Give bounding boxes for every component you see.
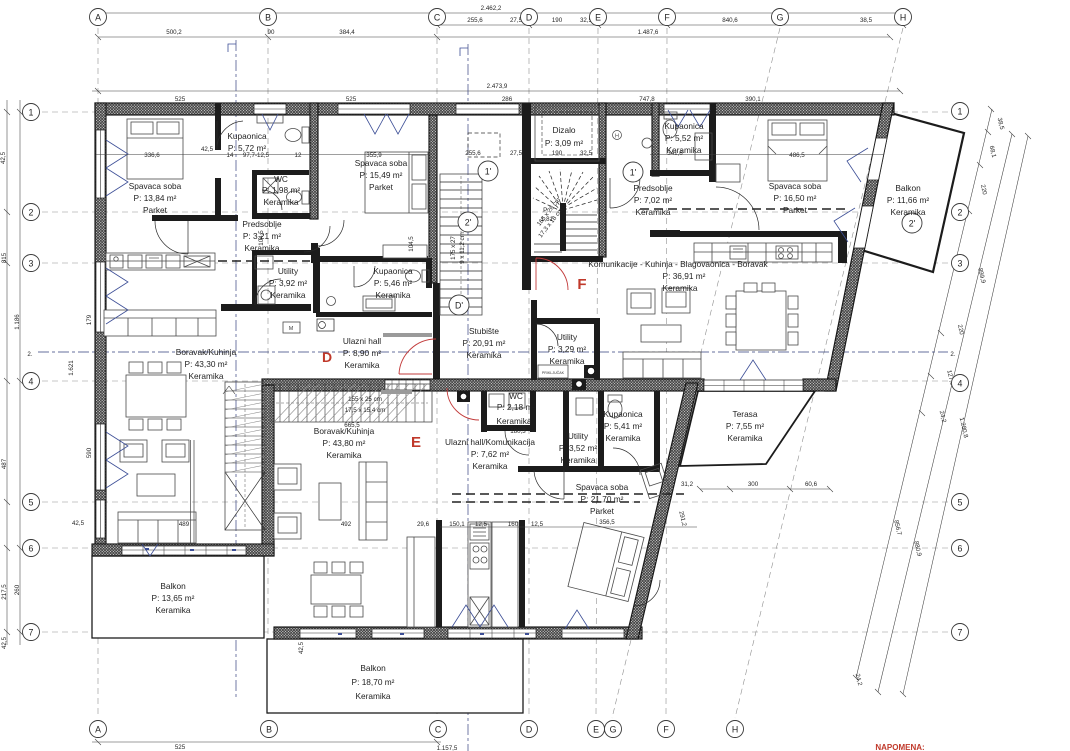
svg-text:3: 3 xyxy=(29,259,34,269)
svg-text:1': 1' xyxy=(485,167,492,177)
svg-text:104,5: 104,5 xyxy=(408,236,415,252)
svg-text:27,5: 27,5 xyxy=(510,150,523,157)
svg-text:Keramika: Keramika xyxy=(635,207,670,217)
svg-text:E: E xyxy=(593,725,599,735)
svg-text:1': 1' xyxy=(630,168,637,178)
svg-text:Parket: Parket xyxy=(590,506,615,516)
svg-text:1: 1 xyxy=(29,108,34,118)
svg-text:P: 2,18 m²: P: 2,18 m² xyxy=(497,402,536,412)
svg-text:H: H xyxy=(732,725,738,735)
svg-text:180,3: 180,3 xyxy=(510,428,526,435)
svg-text:Utility: Utility xyxy=(557,332,578,342)
svg-text:2.: 2. xyxy=(950,351,955,358)
svg-text:Stubište: Stubište xyxy=(469,326,499,336)
svg-text:355,9: 355,9 xyxy=(366,152,382,159)
svg-text:14: 14 xyxy=(227,152,234,159)
svg-text:P: 3,09 m²: P: 3,09 m² xyxy=(545,138,584,148)
svg-text:Komunikacije - Kuhinja - Blago: Komunikacije - Kuhinja - Blagovaonica - … xyxy=(588,259,768,269)
svg-text:P: 20,91 m²: P: 20,91 m² xyxy=(463,338,506,348)
svg-text:840,6: 840,6 xyxy=(722,17,738,24)
svg-text:489: 489 xyxy=(179,521,190,528)
svg-text:2.: 2. xyxy=(27,351,32,358)
svg-text:97,7-12,5: 97,7-12,5 xyxy=(243,152,270,159)
svg-text:Kupaonica: Kupaonica xyxy=(227,131,267,141)
svg-text:390,1: 390,1 xyxy=(745,96,761,103)
svg-text:D: D xyxy=(526,13,532,23)
svg-text:Kupaonica: Kupaonica xyxy=(664,121,704,131)
svg-text:P: 5,41 m²: P: 5,41 m² xyxy=(604,421,643,431)
svg-text:32,5: 32,5 xyxy=(580,150,593,157)
svg-text:255,6: 255,6 xyxy=(467,17,483,24)
svg-text:384,4: 384,4 xyxy=(339,29,355,36)
svg-text:1.487,6: 1.487,6 xyxy=(638,29,659,36)
svg-text:Dizalo: Dizalo xyxy=(552,125,575,135)
svg-text:104,5: 104,5 xyxy=(258,230,265,246)
svg-text:D: D xyxy=(322,349,332,365)
svg-text:Balkon: Balkon xyxy=(360,663,386,673)
svg-text:175 x 27: 175 x 27 xyxy=(450,236,457,260)
svg-text:P: 18,70 m²: P: 18,70 m² xyxy=(352,677,395,687)
svg-text:F: F xyxy=(663,725,669,735)
svg-text:P: 8,90 m²: P: 8,90 m² xyxy=(343,348,382,358)
svg-text:Spavaca soba: Spavaca soba xyxy=(576,482,629,492)
svg-text:2': 2' xyxy=(465,218,472,228)
svg-text:Parket: Parket xyxy=(369,182,394,192)
svg-text:2': 2' xyxy=(909,219,916,229)
svg-text:5: 5 xyxy=(29,498,34,508)
svg-text:Parket: Parket xyxy=(783,205,808,215)
svg-text:Spavaca soba: Spavaca soba xyxy=(129,181,182,191)
svg-text:38,5: 38,5 xyxy=(860,17,873,24)
svg-text:6: 6 xyxy=(29,544,34,554)
svg-text:17,5 x 15,4 cm: 17,5 x 15,4 cm xyxy=(345,407,386,414)
svg-text:P: 7,55 m²: P: 7,55 m² xyxy=(726,421,765,431)
svg-text:2.473,9: 2.473,9 xyxy=(487,83,508,90)
svg-text:42,5: 42,5 xyxy=(0,151,7,164)
svg-text:Predsoblje: Predsoblje xyxy=(633,183,673,193)
svg-text:155 x 25 cm: 155 x 25 cm xyxy=(348,396,382,403)
svg-text:M: M xyxy=(289,326,293,332)
svg-text:P: 11,66 m²: P: 11,66 m² xyxy=(887,195,930,205)
svg-text:C: C xyxy=(434,13,441,23)
svg-text:255,6: 255,6 xyxy=(465,150,481,157)
svg-text:D': D' xyxy=(455,301,463,311)
svg-text:1.157,5: 1.157,5 xyxy=(437,745,458,751)
svg-text:217,5: 217,5 xyxy=(1,584,8,600)
svg-text:P: 5,46 m²: P: 5,46 m² xyxy=(374,278,413,288)
svg-text:31,2: 31,2 xyxy=(681,481,694,488)
svg-text:E: E xyxy=(411,434,421,451)
svg-text:Keramika: Keramika xyxy=(472,461,507,471)
svg-text:P: 43,30 m²: P: 43,30 m² xyxy=(185,359,228,369)
svg-text:341,6: 341,6 xyxy=(667,150,683,157)
svg-text:6: 6 xyxy=(958,544,963,554)
svg-text:Keramika: Keramika xyxy=(326,450,361,460)
svg-text:D: D xyxy=(526,725,532,735)
svg-text:P:: P: xyxy=(543,207,549,214)
svg-text:Keramika: Keramika xyxy=(375,290,410,300)
svg-text:P: 15,49 m²: P: 15,49 m² xyxy=(360,170,403,180)
svg-text:P: 5,52 m²: P: 5,52 m² xyxy=(665,133,704,143)
svg-text:42,5: 42,5 xyxy=(72,520,85,527)
svg-text:WC: WC xyxy=(274,174,288,184)
svg-text:Balkon: Balkon xyxy=(160,581,186,591)
svg-text:Keramika: Keramika xyxy=(549,356,584,366)
svg-text:Ulazni hall/Komunikacija: Ulazni hall/Komunikacija xyxy=(445,437,535,447)
svg-text:Parket: Parket xyxy=(143,205,168,215)
svg-text:A: A xyxy=(95,13,101,23)
svg-text:2.462,2: 2.462,2 xyxy=(481,5,502,12)
svg-text:Keramika: Keramika xyxy=(344,360,379,370)
svg-text:2: 2 xyxy=(958,208,963,218)
svg-text:260: 260 xyxy=(14,584,21,595)
svg-text:12: 12 xyxy=(295,152,302,159)
svg-text:60,6: 60,6 xyxy=(805,481,818,488)
svg-text:Kupaonica: Kupaonica xyxy=(603,409,643,419)
svg-text:Keramika: Keramika xyxy=(270,290,305,300)
svg-text:Keramika: Keramika xyxy=(466,350,501,360)
svg-text:P: 36,91 m²: P: 36,91 m² xyxy=(663,271,706,281)
svg-text:F: F xyxy=(664,13,670,23)
svg-text:7: 7 xyxy=(958,628,963,638)
svg-text:Keramika: Keramika xyxy=(355,691,390,701)
svg-text:P: 3,52 m²: P: 3,52 m² xyxy=(559,443,598,453)
svg-text:Boravak/Kuhinja: Boravak/Kuhinja xyxy=(176,347,237,357)
svg-text:179: 179 xyxy=(86,314,93,325)
svg-text:P: 3,29 m²: P: 3,29 m² xyxy=(548,344,587,354)
svg-text:815: 815 xyxy=(1,252,8,263)
svg-text:29,6: 29,6 xyxy=(417,521,430,528)
svg-text:Utility: Utility xyxy=(278,266,299,276)
svg-text:492: 492 xyxy=(341,521,352,528)
svg-text:P: 43,80 m²: P: 43,80 m² xyxy=(323,438,366,448)
svg-text:486,5: 486,5 xyxy=(789,152,805,159)
svg-text:P: 13,65 m²: P: 13,65 m² xyxy=(152,593,195,603)
svg-text:Terasa: Terasa xyxy=(733,409,758,419)
svg-text:190: 190 xyxy=(552,17,563,24)
svg-text:336,6: 336,6 xyxy=(144,152,160,159)
svg-text:525: 525 xyxy=(175,96,186,103)
svg-text:P: 13,84 m²: P: 13,84 m² xyxy=(134,193,177,203)
svg-text:Balkon: Balkon xyxy=(895,183,921,193)
svg-text:A: A xyxy=(95,725,101,735)
svg-text:9 x 11,2 cm: 9 x 11,2 cm xyxy=(459,232,466,264)
svg-text:G: G xyxy=(610,725,617,735)
svg-text:300: 300 xyxy=(748,481,759,488)
svg-text:P: 3,92 m²: P: 3,92 m² xyxy=(269,278,308,288)
svg-text:PRIKLJUČAK: PRIKLJUČAK xyxy=(542,370,565,375)
svg-text:356,5: 356,5 xyxy=(599,519,615,526)
svg-text:1: 1 xyxy=(958,107,963,117)
svg-text:5: 5 xyxy=(958,498,963,508)
svg-text:B: B xyxy=(266,725,272,735)
svg-text:WC: WC xyxy=(509,391,523,401)
svg-text:P: 7,62 m²: P: 7,62 m² xyxy=(471,449,510,459)
svg-text:525: 525 xyxy=(346,96,357,103)
svg-text:42,5: 42,5 xyxy=(298,641,305,654)
svg-text:4: 4 xyxy=(958,379,963,389)
svg-text:G: G xyxy=(777,13,784,23)
svg-text:Kupaonica: Kupaonica xyxy=(373,266,413,276)
svg-text:Spavaca soba: Spavaca soba xyxy=(769,181,822,191)
svg-text:42,5: 42,5 xyxy=(201,146,214,153)
svg-text:747,8: 747,8 xyxy=(639,96,655,103)
svg-text:3: 3 xyxy=(958,259,963,269)
svg-text:286: 286 xyxy=(502,96,513,103)
svg-text:2: 2 xyxy=(29,208,34,218)
svg-text:1,81: 1,81 xyxy=(541,216,554,223)
svg-text:Utility: Utility xyxy=(568,431,589,441)
svg-text:4: 4 xyxy=(29,377,34,387)
svg-text:Keramika: Keramika xyxy=(605,433,640,443)
svg-text:B: B xyxy=(265,13,271,23)
svg-text:P: 7,02 m²: P: 7,02 m² xyxy=(634,195,673,205)
svg-text:190: 190 xyxy=(552,150,563,157)
svg-text:1.186: 1.186 xyxy=(14,314,21,330)
svg-text:Keramika: Keramika xyxy=(662,283,697,293)
svg-text:NAPOMENA:: NAPOMENA: xyxy=(875,743,924,751)
svg-text:Keramika: Keramika xyxy=(560,455,595,465)
svg-text:Keramika: Keramika xyxy=(188,371,223,381)
svg-text:487: 487 xyxy=(1,458,8,469)
svg-text:1.621: 1.621 xyxy=(68,360,75,376)
svg-text:H: H xyxy=(900,13,906,23)
svg-text:H: H xyxy=(615,134,619,140)
svg-text:Spavaca soba: Spavaca soba xyxy=(355,158,408,168)
svg-text:F: F xyxy=(577,276,586,293)
svg-text:P: 21,70 m²: P: 21,70 m² xyxy=(581,494,624,504)
svg-text:7: 7 xyxy=(29,628,34,638)
svg-text:525: 525 xyxy=(175,744,186,751)
svg-text:500,2: 500,2 xyxy=(166,29,182,36)
svg-text:Keramika: Keramika xyxy=(263,197,298,207)
svg-text:Predsoblje: Predsoblje xyxy=(242,219,282,229)
svg-text:590: 590 xyxy=(86,447,93,458)
svg-text:Keramika: Keramika xyxy=(727,433,762,443)
svg-text:Keramika: Keramika xyxy=(155,605,190,615)
svg-text:Ulazni hall: Ulazni hall xyxy=(343,336,381,346)
svg-text:P: 1,98 m²: P: 1,98 m² xyxy=(262,185,301,195)
svg-text:665,5: 665,5 xyxy=(344,422,360,429)
svg-text:Keramika: Keramika xyxy=(890,207,925,217)
svg-text:90: 90 xyxy=(268,29,275,36)
svg-text:C: C xyxy=(435,725,442,735)
svg-text:P: 16,50 m²: P: 16,50 m² xyxy=(774,193,817,203)
svg-text:42,5: 42,5 xyxy=(1,636,8,649)
svg-text:Keramika: Keramika xyxy=(496,416,531,426)
svg-text:E: E xyxy=(595,13,601,23)
